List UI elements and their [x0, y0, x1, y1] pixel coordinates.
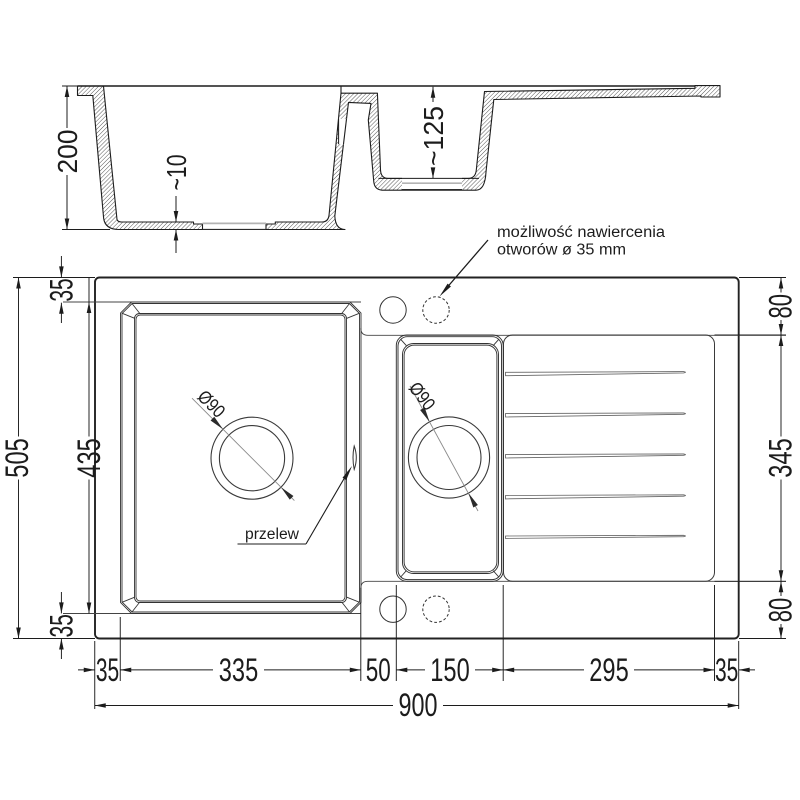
- svg-text:~125: ~125: [418, 106, 449, 166]
- svg-text:możliwość nawiercenia: możliwość nawiercenia: [497, 224, 665, 241]
- svg-text:Ø90: Ø90: [194, 386, 230, 422]
- svg-text:200: 200: [52, 130, 83, 174]
- svg-text:35: 35: [96, 652, 119, 688]
- svg-text:~10: ~10: [161, 155, 192, 191]
- svg-text:345: 345: [762, 438, 798, 477]
- svg-text:295: 295: [589, 652, 628, 688]
- svg-text:80: 80: [762, 294, 798, 319]
- svg-text:505: 505: [0, 438, 35, 477]
- svg-text:50: 50: [366, 652, 391, 688]
- svg-text:otworów ø 35 mm: otworów ø 35 mm: [497, 242, 626, 259]
- svg-text:przelew: przelew: [245, 526, 300, 543]
- svg-text:335: 335: [219, 652, 258, 688]
- svg-text:Ø90: Ø90: [405, 378, 440, 415]
- svg-text:900: 900: [399, 687, 438, 723]
- svg-text:435: 435: [71, 438, 107, 477]
- svg-text:35: 35: [44, 614, 80, 637]
- svg-text:80: 80: [762, 598, 798, 623]
- svg-text:35: 35: [715, 652, 738, 688]
- svg-text:35: 35: [44, 278, 80, 301]
- svg-text:150: 150: [430, 652, 469, 688]
